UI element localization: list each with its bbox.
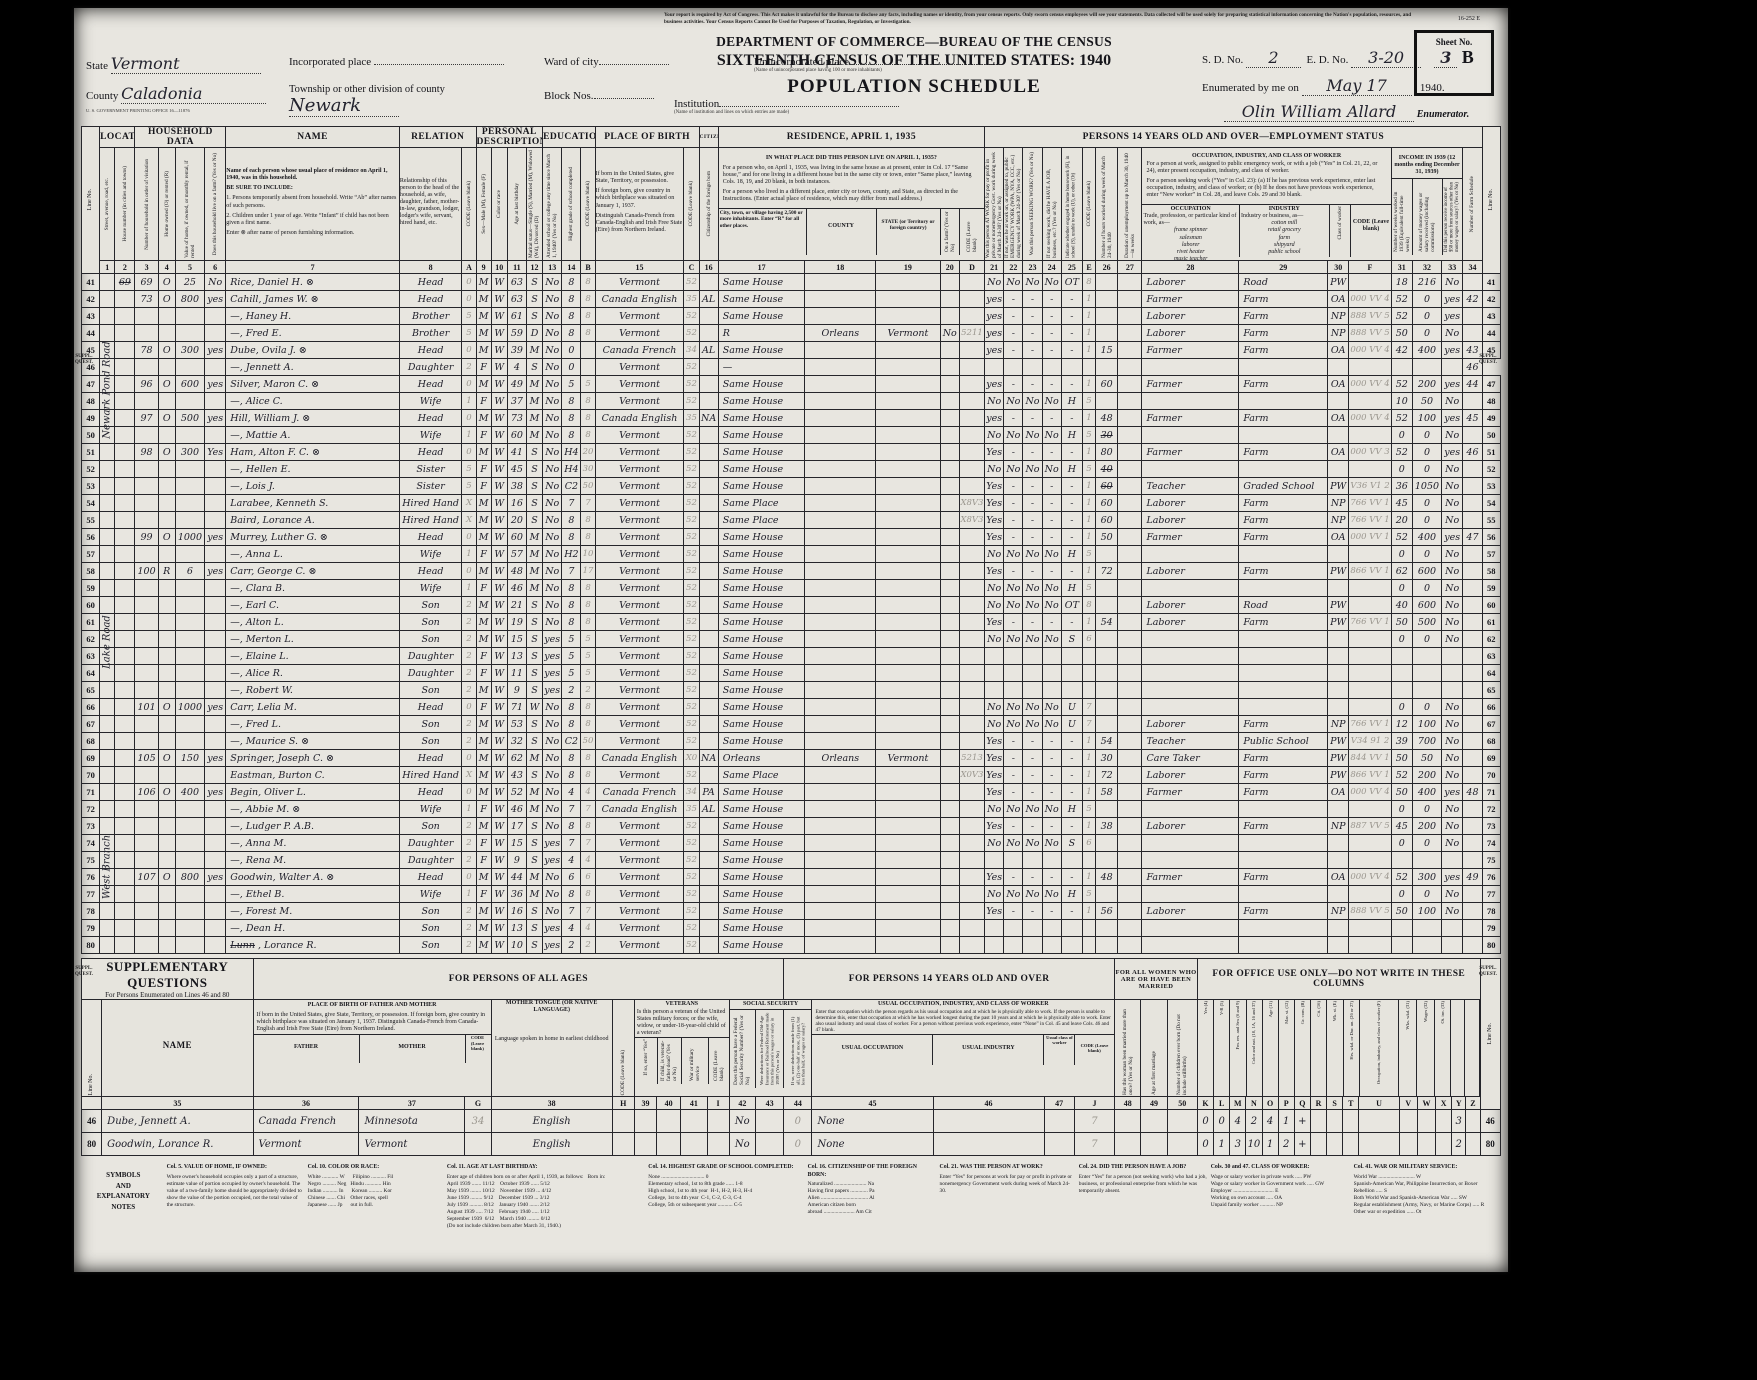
cell: 57 [82, 546, 100, 563]
cell [681, 1133, 707, 1156]
cell: OT [1061, 597, 1082, 614]
office-col-label: Cit. (16) [1311, 1000, 1327, 1096]
office-cell: 2 [1278, 1133, 1294, 1156]
cell: No [1004, 580, 1023, 597]
cell: W [491, 512, 507, 529]
cell [1004, 937, 1023, 954]
cell [940, 920, 959, 937]
population-schedule-table: Line No. LOCATION HOUSEHOLD DATA NAME RE… [81, 126, 1501, 954]
cell [940, 444, 959, 461]
cell [959, 716, 984, 733]
cell: Head [399, 291, 462, 308]
cell: F [476, 648, 491, 665]
cell: No [1042, 546, 1061, 563]
cell: M [476, 512, 491, 529]
description-header-row: Street, avenue, road, etc. House number … [82, 148, 1501, 261]
cell: No [1442, 818, 1463, 835]
cell: PW [1328, 750, 1349, 767]
cell [1082, 852, 1095, 869]
note-line: World War ........................... W [1354, 1174, 1498, 1181]
cell: yes [205, 563, 226, 580]
cell [805, 699, 876, 716]
cell: W [491, 852, 507, 869]
cell: No [543, 393, 562, 410]
cell [805, 903, 876, 920]
cell: Canada English [595, 801, 684, 818]
cell [1442, 682, 1463, 699]
suppl-box: SUPPLEMENTARY QUESTIONS For Persons Enum… [82, 959, 254, 1000]
cell: Goodwin, Walter A. ⊗ [226, 869, 400, 886]
cell [1118, 869, 1142, 886]
cell: 10 [1391, 393, 1412, 410]
cell: No [729, 1133, 755, 1156]
cell: 0 [462, 376, 476, 393]
cell [1442, 648, 1463, 665]
cell: Teacher [1142, 733, 1239, 750]
cell [876, 495, 941, 512]
cell: 52 [684, 937, 699, 954]
note-line: Enter “Yes” for a person (not seeking wo… [1079, 1174, 1207, 1195]
cell: 000 VV 4 [1349, 410, 1391, 427]
cell: Wife [399, 546, 462, 563]
cell: No [1004, 546, 1023, 563]
cell: 48 [1096, 410, 1118, 427]
cell [1463, 461, 1482, 478]
cell [1118, 495, 1142, 512]
cell: 8 [581, 410, 595, 427]
suppl-tongue-col: MOTHER TONGUE (OR NATIVE LANGUAGE) Langu… [491, 1000, 612, 1097]
cell: No [1004, 393, 1023, 410]
cell: F [476, 461, 491, 478]
cell: M [526, 750, 542, 767]
cell [940, 699, 959, 716]
census-row: 55Baird, Lorance A.Hired HandXMW20SNo88V… [82, 512, 1501, 529]
cell: 8 [581, 308, 595, 325]
cell: yes [543, 920, 562, 937]
cell: Same House [718, 410, 805, 427]
cell [100, 444, 115, 461]
cell: 888 VV 5 [1349, 325, 1391, 342]
cell: M [476, 274, 491, 291]
note-line: Enter age of children born on or after A… [447, 1174, 644, 1181]
cell [1328, 461, 1349, 478]
cell [1463, 750, 1482, 767]
cell [205, 614, 226, 631]
supplementary-row: 80Goodwin, Lorance R.VermontVermontEngli… [82, 1133, 1501, 1156]
cell: H [1061, 427, 1082, 444]
cell: 4 [581, 920, 595, 937]
cell: English [491, 1133, 612, 1156]
cell: Vermont [595, 529, 684, 546]
cell: 600 [175, 376, 204, 393]
cell: 32 [507, 733, 526, 750]
note-title: Col. 21. WAS THE PERSON AT WORK? [940, 1164, 1075, 1172]
cell [699, 937, 718, 954]
cell: 60 [82, 597, 100, 614]
census-row: 52—, Hellen E.Sister5FW45SNoH430Vermont5… [82, 461, 1501, 478]
cell: 7 [1082, 699, 1095, 716]
cell: Farm [1239, 495, 1328, 512]
cell: W [491, 818, 507, 835]
street-name: West Branch [102, 835, 113, 899]
col-number: 25 [1061, 261, 1082, 274]
cell: Baird, Lorance A. [226, 512, 400, 529]
cell: Farmer [1142, 410, 1239, 427]
cell [1082, 665, 1095, 682]
cell: NP [1328, 716, 1349, 733]
cell: X0 [684, 750, 699, 767]
cell: - [1004, 818, 1023, 835]
cell [115, 597, 135, 614]
cell: 45 [1463, 410, 1482, 427]
cell [1463, 274, 1482, 291]
cell [959, 920, 984, 937]
cell [959, 682, 984, 699]
cell: yes [985, 376, 1004, 393]
cell [205, 580, 226, 597]
cell: 0 [1391, 835, 1412, 852]
cell: M [476, 495, 491, 512]
cell: 4 [507, 359, 526, 376]
cell: W [491, 359, 507, 376]
cell: - [1023, 733, 1042, 750]
cell: 8 [581, 716, 595, 733]
cell: 5 [462, 478, 476, 495]
cell: 59 [1482, 580, 1500, 597]
cell [135, 852, 158, 869]
cell: 1 [1082, 342, 1095, 359]
cell: Dube, Jennett A. [102, 1110, 253, 1133]
cell: yes [543, 852, 562, 869]
cell [115, 801, 135, 818]
cell: 8 [581, 597, 595, 614]
cell [175, 512, 204, 529]
cell: yes [985, 291, 1004, 308]
cell: Yes [985, 750, 1004, 767]
cell: 8 [581, 274, 595, 291]
cell [1239, 461, 1328, 478]
cell [959, 359, 984, 376]
cell: Son [399, 614, 462, 631]
cell: 52 [684, 478, 699, 495]
census-row: 46—, Jennett A.Daughter2FW4SNo0Vermont52… [82, 359, 1501, 376]
cell [175, 631, 204, 648]
census-row: 416969O25NoRice, Daniel H. ⊗Head0MW63SNo… [82, 274, 1501, 291]
cell: Vermont [595, 852, 684, 869]
cell: 52 [1391, 767, 1412, 784]
cell: Yes [985, 478, 1004, 495]
township-field: Township or other division of county New… [289, 84, 539, 117]
cell: 47 [82, 376, 100, 393]
census-row: 4997O500yesHill, William J. ⊗Head0MW73MN… [82, 410, 1501, 427]
cell: W [491, 325, 507, 342]
cell [115, 920, 135, 937]
cell: 9 [507, 852, 526, 869]
cell [115, 563, 135, 580]
cell [1239, 393, 1328, 410]
office-cell [1343, 1133, 1359, 1156]
cell: Farm [1239, 376, 1328, 393]
suppl-code-h: CODE (Leave blank) [612, 1000, 634, 1097]
cell: PW [1328, 274, 1349, 291]
cell: 66 [82, 699, 100, 716]
cell [1463, 903, 1482, 920]
cell [1349, 597, 1391, 614]
cell [100, 903, 115, 920]
cell: 000 VV 4 [1349, 376, 1391, 393]
cell: 52 [684, 665, 699, 682]
col-number: C [684, 261, 699, 274]
cell: 600 [1412, 563, 1441, 580]
cell: Vermont [595, 903, 684, 920]
cell: Vermont [595, 682, 684, 699]
cell: 1 [462, 546, 476, 563]
col-code-a: CODE (Leave blank) [462, 148, 476, 261]
cell [115, 818, 135, 835]
cell: 51 [1482, 444, 1500, 461]
cell: F [476, 427, 491, 444]
cell [115, 444, 135, 461]
cell: 52 [684, 767, 699, 784]
cell: 52 [684, 835, 699, 852]
cell [1096, 546, 1118, 563]
cell: 59 [507, 325, 526, 342]
cell: yes [543, 665, 562, 682]
cell [1463, 563, 1482, 580]
cell: M [476, 818, 491, 835]
cell: No [1023, 801, 1042, 818]
cell: F [476, 359, 491, 376]
cell: Same House [718, 699, 805, 716]
cell [205, 767, 226, 784]
cell: No [543, 308, 562, 325]
cell [1463, 648, 1482, 665]
cell [135, 818, 158, 835]
suppl-veterans-group: VETERANS Is this person a veteran of the… [634, 1000, 729, 1097]
cell: W [491, 886, 507, 903]
cell: Sister [399, 478, 462, 495]
census-row: 59—, Clara B.Wife1FW46MNo88Vermont52Same… [82, 580, 1501, 597]
note-title: Col. 24. DID THE PERSON HAVE A JOB? [1079, 1164, 1207, 1172]
cell: M [526, 529, 542, 546]
cell: X8V3 [959, 495, 984, 512]
cell: No [543, 580, 562, 597]
cell: 1 [1082, 325, 1095, 342]
cell: 2 [581, 937, 595, 954]
cell: Minnesota [359, 1110, 465, 1133]
cell: - [1004, 869, 1023, 886]
cell: 7 [581, 801, 595, 818]
cell: 53 [82, 478, 100, 495]
cell [1096, 937, 1118, 954]
cell: - [1042, 529, 1061, 546]
cell: Farm [1239, 750, 1328, 767]
cell: Daughter [399, 359, 462, 376]
cell: 46 [82, 1110, 102, 1133]
cell: 49 [82, 410, 100, 427]
cell: F [476, 393, 491, 410]
cell: Same House [718, 478, 805, 495]
col-farm-schedule: Number of Farm Schedule [1463, 148, 1482, 261]
cell [1096, 631, 1118, 648]
cell: 52 [684, 274, 699, 291]
cell: 100 [135, 563, 158, 580]
cell [1082, 648, 1095, 665]
cell: 71 [507, 699, 526, 716]
cell [1463, 597, 1482, 614]
cell [1463, 308, 1482, 325]
cell: yes [985, 342, 1004, 359]
cell: 75 [1482, 852, 1500, 869]
cell: Same House [718, 291, 805, 308]
cell: No [543, 291, 562, 308]
census-row: 79—, Dean H.Son2MW13Syes44Vermont52Same … [82, 920, 1501, 937]
cell: 0 [1391, 801, 1412, 818]
cell [1004, 852, 1023, 869]
cell: 50 [1391, 784, 1412, 801]
cell: 16 [507, 495, 526, 512]
cell: Springer, Joseph C. ⊗ [226, 750, 400, 767]
cell: H [1061, 393, 1082, 410]
col-industry: INDUSTRY Industry or business, as— cotto… [1240, 205, 1330, 257]
cell [1118, 291, 1142, 308]
cell [205, 886, 226, 903]
cell: W [491, 614, 507, 631]
sd-value: 2 [1268, 48, 1278, 67]
cell: V36 V1 2 [1349, 478, 1391, 495]
cell [1061, 665, 1082, 682]
cell: S [526, 903, 542, 920]
cell: Vermont [595, 614, 684, 631]
cell: 600 [1412, 597, 1441, 614]
cell: W [491, 427, 507, 444]
cell: Same House [718, 580, 805, 597]
col-number: 35 [102, 1097, 253, 1110]
cell: No [543, 869, 562, 886]
cell [805, 597, 876, 614]
cell [1239, 427, 1328, 444]
suppl-code-i: CODE (Leave blank) [709, 1038, 729, 1084]
cell: 63 [82, 648, 100, 665]
cell: M [476, 597, 491, 614]
cell: Orleans [718, 750, 805, 767]
cell [1042, 665, 1061, 682]
cell: No [1004, 597, 1023, 614]
cell: No [1442, 495, 1463, 512]
cell: 0 [462, 291, 476, 308]
cell [205, 427, 226, 444]
cell: - [1042, 767, 1061, 784]
cell: 76 [82, 869, 100, 886]
cell: S [526, 648, 542, 665]
suppl-vet40: If child, is veteran-father dead? (Yes o… [658, 1038, 683, 1084]
cell [205, 631, 226, 648]
cell [959, 291, 984, 308]
cell [699, 699, 718, 716]
cell: 800 [175, 291, 204, 308]
cell: 0 [1391, 427, 1412, 444]
cell [1391, 648, 1412, 665]
township-label: Township or other division of county [289, 84, 445, 95]
cell: 25 [175, 274, 204, 291]
cell [1023, 852, 1042, 869]
cell: Yes [985, 529, 1004, 546]
cell: O [158, 529, 175, 546]
cell: - [1023, 818, 1042, 835]
cell: —, Mattie A. [226, 427, 400, 444]
col-number: I [707, 1097, 729, 1110]
cell [1328, 699, 1349, 716]
suppl-ss42: Does this person have a Federal Social S… [730, 1010, 756, 1088]
cell [175, 665, 204, 682]
cell: - [1042, 342, 1061, 359]
col-number: 30 [1328, 261, 1349, 274]
cell: Brother [399, 308, 462, 325]
cell: 105 [135, 750, 158, 767]
cell: Farmer [1142, 529, 1239, 546]
cell [1004, 682, 1023, 699]
cell [1118, 699, 1142, 716]
cell: 8 [562, 818, 581, 835]
cell: - [1042, 512, 1061, 529]
cell: 59 [82, 580, 100, 597]
cell: F [476, 580, 491, 597]
cell: 72 [1096, 767, 1118, 784]
agency-title: DEPARTMENT OF COMMERCE—BUREAU OF THE CEN… [634, 34, 1194, 50]
cell: M [526, 546, 542, 563]
census-row: 61—, Alton L.Son2MW19SNo88Vermont52Same … [82, 614, 1501, 631]
cell: S [526, 733, 542, 750]
cell: PW [1328, 563, 1349, 580]
cell: - [1023, 750, 1042, 767]
cell: 100 [1412, 903, 1441, 920]
cell [1096, 682, 1118, 699]
cell [876, 563, 941, 580]
cell [175, 716, 204, 733]
cell [1142, 665, 1239, 682]
census-row: 50—, Mattie A.Wife1FW60MNo88Vermont52Sam… [82, 427, 1501, 444]
cell: Vermont [595, 665, 684, 682]
cell: 5 [562, 376, 581, 393]
cell: O [158, 410, 175, 427]
cell: 1 [1082, 750, 1095, 767]
cell: yes [205, 291, 226, 308]
cell [876, 733, 941, 750]
cell: Daughter [399, 665, 462, 682]
cell: 96 [135, 376, 158, 393]
cell [205, 478, 226, 495]
cell [707, 1133, 729, 1156]
suppl-women: FOR ALL WOMEN WHO ARE OR HAVE BEEN MARRI… [1115, 959, 1198, 1000]
cell: O [158, 784, 175, 801]
cell: - [1023, 444, 1042, 461]
cell: 8 [562, 580, 581, 597]
cell: F [476, 801, 491, 818]
cell [175, 852, 204, 869]
census-row: 44—, Fred E.Brother5MW59DNo88Vermont52RO… [82, 325, 1501, 342]
cell: 0 [1412, 801, 1441, 818]
cell: W [491, 376, 507, 393]
cell: 60 [1096, 478, 1118, 495]
cell: 49 [1463, 869, 1482, 886]
cell: Head [399, 869, 462, 886]
cell [1463, 937, 1482, 954]
cell: 78 [82, 903, 100, 920]
cell [876, 393, 941, 410]
office-cell: + [1294, 1133, 1310, 1156]
office-col-label: Hrs. wkd. or Dur. un. (26 or 27) [1344, 1000, 1360, 1096]
cell: 0 [1412, 325, 1441, 342]
